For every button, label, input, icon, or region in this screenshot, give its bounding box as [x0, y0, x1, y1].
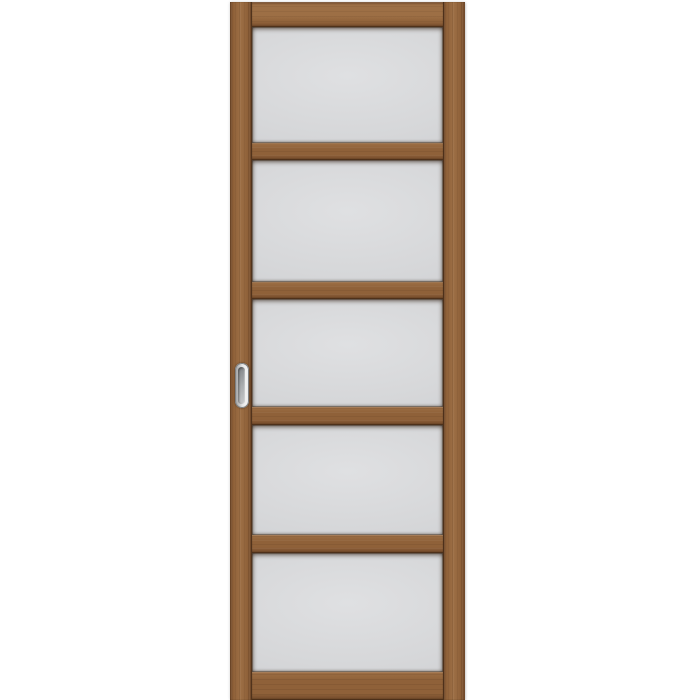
rail-1: [252, 143, 443, 160]
glass-panel-1: [252, 27, 443, 143]
glass-panel-5: [252, 553, 443, 672]
rail-3: [252, 407, 443, 425]
sliding-door: [230, 2, 465, 700]
top-rail: [252, 2, 443, 27]
door-pull-handle: [235, 363, 249, 408]
door-left-stile: [230, 2, 252, 700]
rail-2: [252, 282, 443, 299]
rail-4: [252, 535, 443, 553]
bottom-rail: [252, 672, 443, 700]
glass-panel-2: [252, 160, 443, 282]
glass-panel-4: [252, 425, 443, 535]
product-photo-stage: Product photograph on a white background…: [0, 0, 700, 700]
handle-recess: [238, 367, 245, 404]
door-right-stile: [443, 2, 465, 700]
door-center-column: [252, 2, 443, 700]
scene-description: Product photograph on a white background…: [0, 0, 1, 1]
glass-panel-3: [252, 299, 443, 407]
